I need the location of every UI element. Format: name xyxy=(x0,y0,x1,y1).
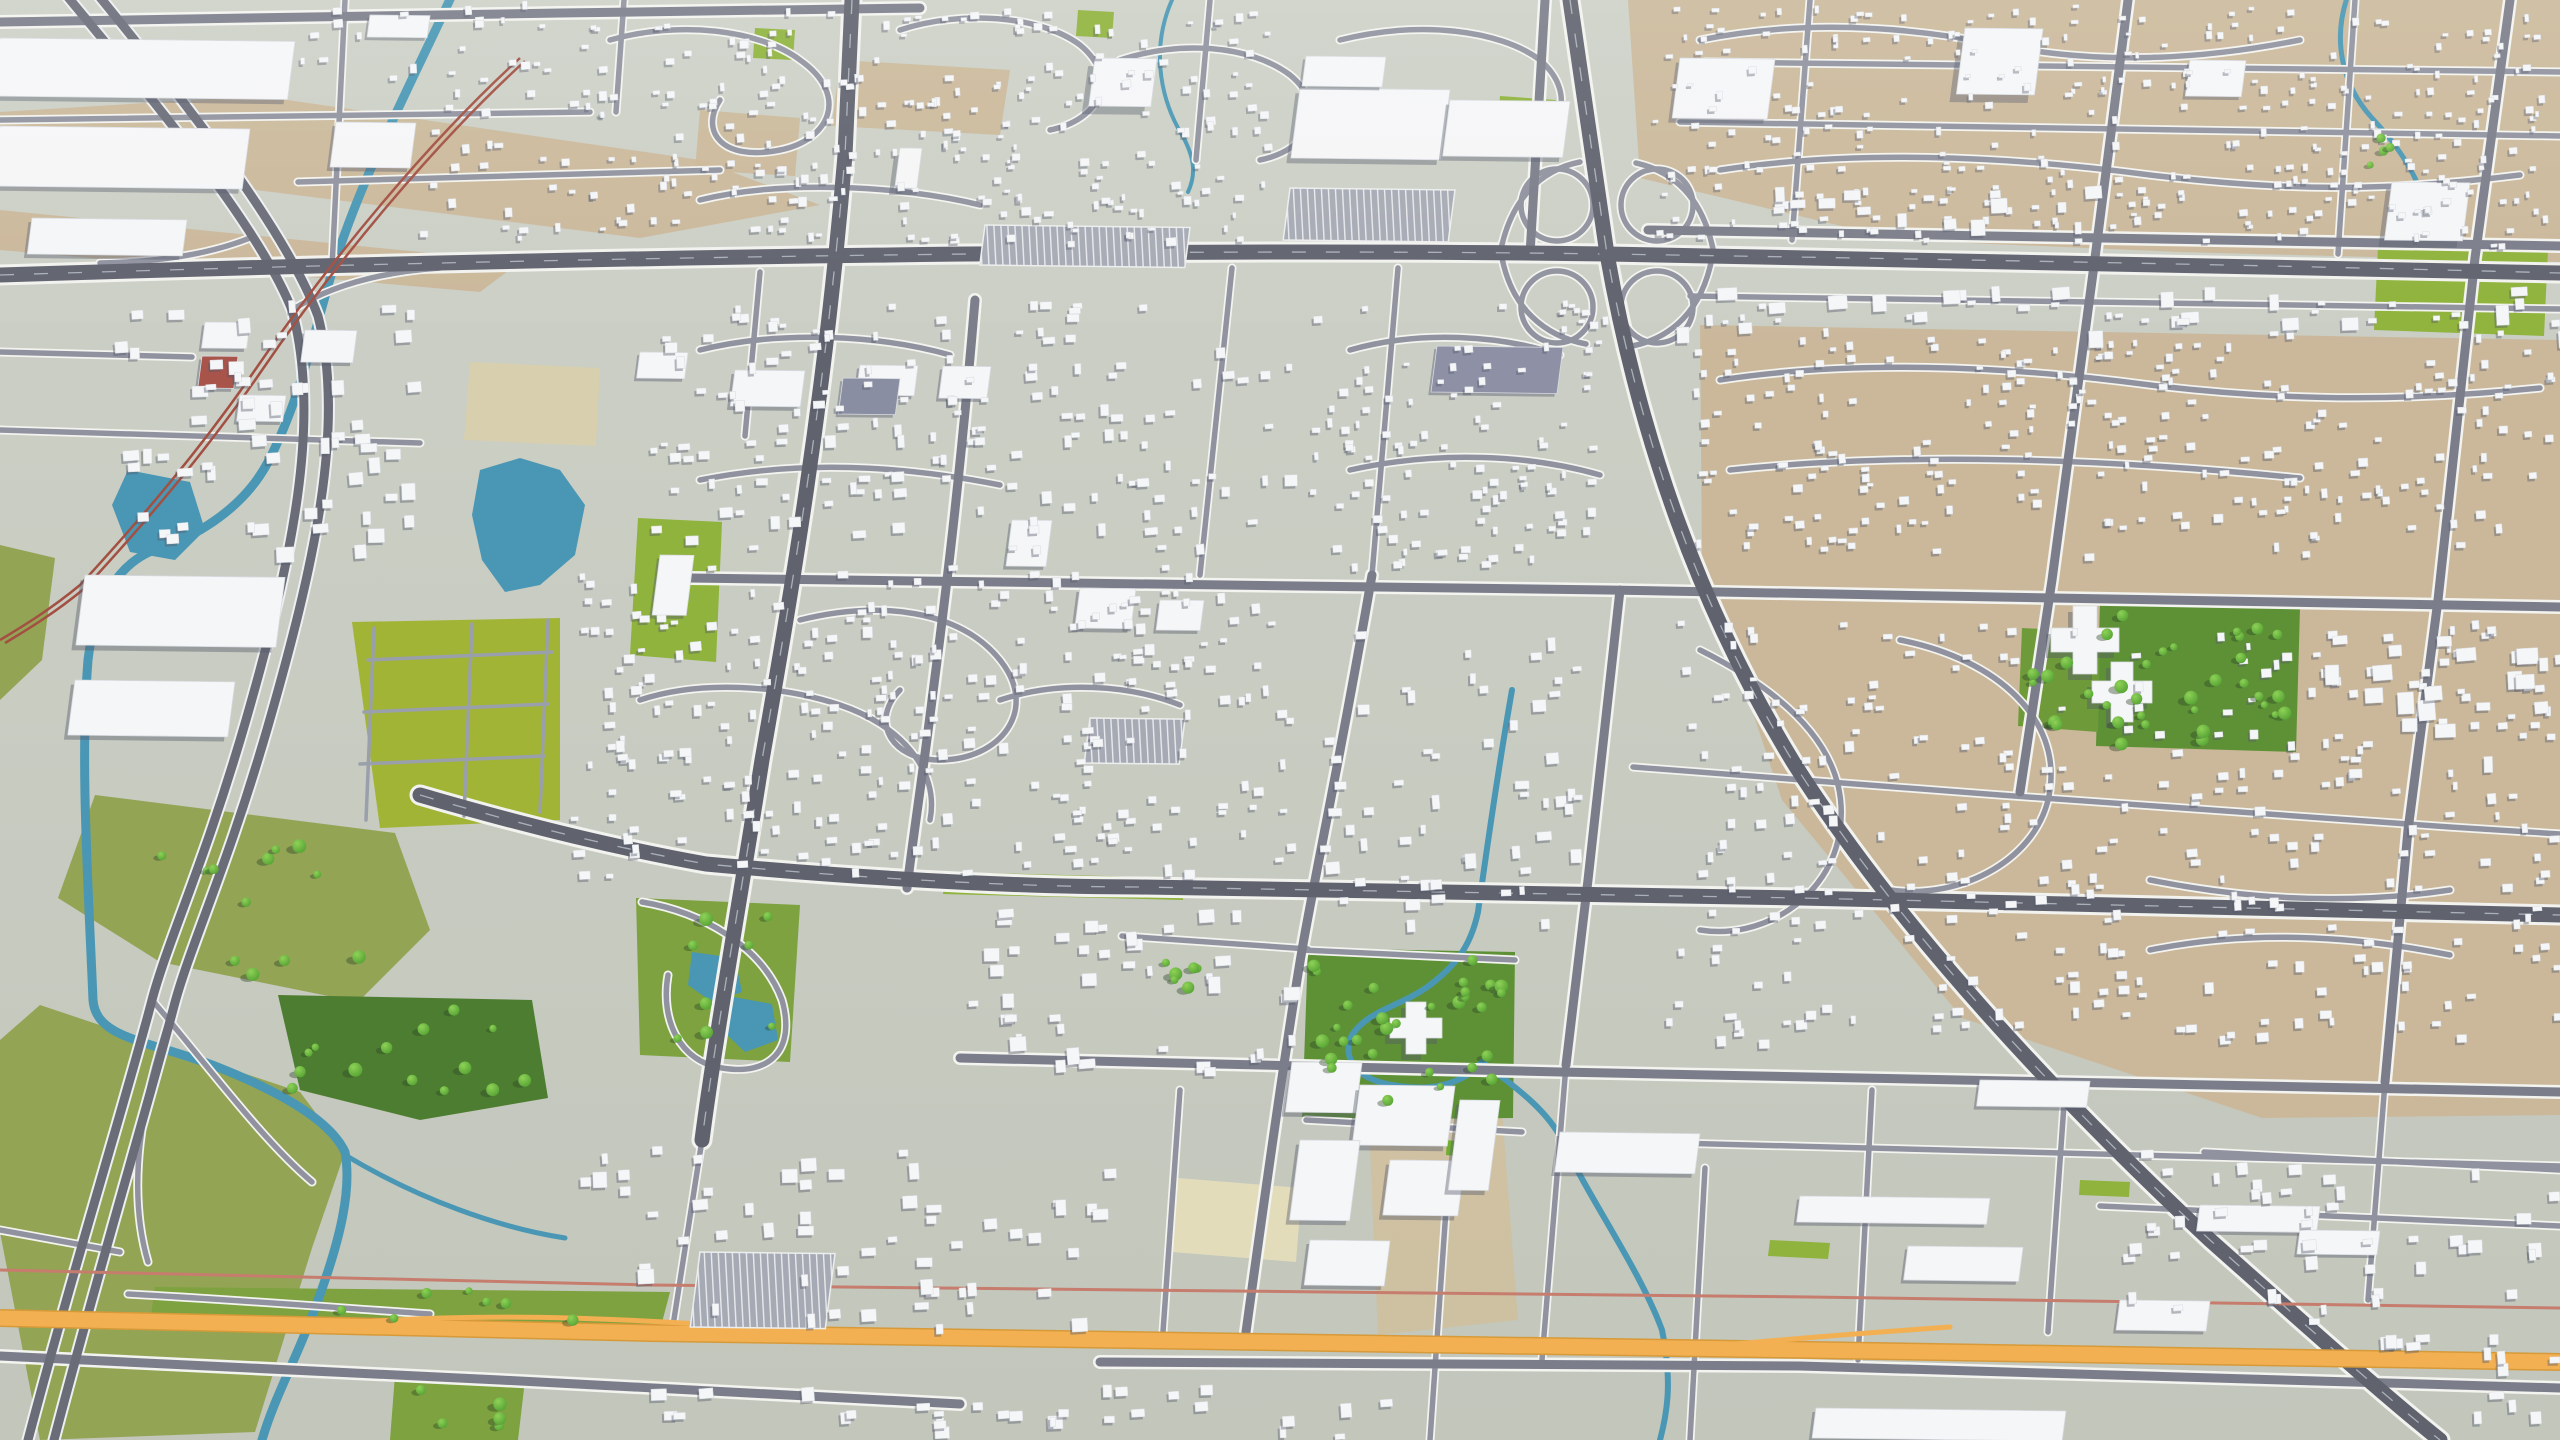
house-roof xyxy=(1073,810,1082,815)
house-roof xyxy=(769,196,777,202)
house-roof xyxy=(2483,37,2490,42)
house-roof xyxy=(2531,126,2535,132)
house-roof xyxy=(768,49,772,57)
house-roof xyxy=(2303,551,2311,558)
house-roof xyxy=(2489,97,2495,102)
house-roof xyxy=(900,397,908,402)
house-roof xyxy=(1675,1001,1683,1007)
house-roof xyxy=(2113,910,2121,920)
house-roof xyxy=(2120,526,2127,530)
house-roof xyxy=(891,472,904,482)
house-roof xyxy=(2323,739,2329,748)
house-roof xyxy=(737,133,745,142)
house-roof xyxy=(1955,32,1960,36)
house-roof xyxy=(2383,634,2393,642)
house-roof xyxy=(2452,312,2461,317)
house-roof xyxy=(1718,28,1725,33)
house-roof xyxy=(897,182,904,191)
house-roof xyxy=(2214,514,2224,523)
house-roof xyxy=(749,545,759,550)
house-roof xyxy=(849,152,857,159)
house-roof xyxy=(1560,309,1567,314)
house-roof xyxy=(2483,406,2489,414)
house-roof xyxy=(2186,442,2195,450)
house-roof xyxy=(931,691,936,699)
house-roof xyxy=(2366,95,2372,99)
house-roof xyxy=(2496,524,2503,534)
house-roof xyxy=(2162,374,2170,381)
house-roof xyxy=(2115,313,2123,317)
house-roof xyxy=(2286,164,2294,169)
house-roof xyxy=(696,388,706,394)
house-roof xyxy=(1823,328,1828,337)
house-roof xyxy=(1793,484,1803,492)
house-roof xyxy=(1518,368,1526,372)
house-roof xyxy=(2251,829,2259,835)
house-roof xyxy=(1899,496,1909,504)
house-roof xyxy=(883,21,889,30)
house-shadow xyxy=(2124,35,2129,38)
house-roof xyxy=(1060,122,1066,131)
house-roof xyxy=(2287,842,2298,850)
house-roof xyxy=(1115,206,1124,211)
house-roof xyxy=(586,581,595,588)
house-roof xyxy=(755,164,760,167)
house-roof xyxy=(1096,53,1104,59)
house-roof xyxy=(709,479,715,489)
house-roof xyxy=(1688,166,1696,172)
house-roof xyxy=(1277,710,1287,718)
house-roof xyxy=(788,770,799,778)
house-roof xyxy=(1044,211,1054,217)
house-roof xyxy=(750,710,756,720)
house-roof xyxy=(801,702,809,713)
house-roof xyxy=(816,817,822,826)
house-roof xyxy=(1237,236,1244,242)
house-roof xyxy=(1574,308,1580,313)
house-roof xyxy=(2454,938,2462,945)
house-roof xyxy=(1589,445,1597,450)
house-roof xyxy=(813,774,822,781)
house-roof xyxy=(1839,454,1846,464)
house-roof xyxy=(1064,503,1076,511)
house-roof xyxy=(2105,774,2112,779)
house-roof xyxy=(828,11,835,16)
house-roof xyxy=(1709,142,1717,147)
house-roof xyxy=(2226,343,2231,351)
house-roof xyxy=(708,702,716,706)
house-roof xyxy=(806,131,815,139)
house-roof xyxy=(766,357,778,364)
building xyxy=(0,126,250,189)
house-roof xyxy=(1265,424,1274,429)
house-roof xyxy=(891,640,897,647)
house-roof xyxy=(816,233,822,236)
building xyxy=(1291,88,1450,160)
house-roof xyxy=(1482,561,1492,568)
house-roof xyxy=(573,850,585,858)
house-roof xyxy=(1185,659,1192,667)
house-roof xyxy=(1755,423,1762,429)
house-roof xyxy=(1756,819,1767,828)
house-roof xyxy=(1689,723,1697,729)
house-roof xyxy=(2103,76,2106,82)
house-roof xyxy=(756,170,765,176)
house-roof xyxy=(2351,470,2361,476)
house-roof xyxy=(2000,653,2008,660)
house-roof xyxy=(2480,858,2491,866)
house-roof xyxy=(1956,50,1960,56)
house-roof xyxy=(1975,737,1984,744)
house-roof xyxy=(2351,757,2361,763)
house-roof xyxy=(2525,14,2529,22)
house-roof xyxy=(1018,194,1023,201)
house-roof xyxy=(2507,228,2514,233)
house-roof xyxy=(970,12,979,19)
house-roof xyxy=(2006,763,2014,770)
house-roof xyxy=(2135,52,2139,58)
house-roof xyxy=(2073,628,2078,636)
house-roof xyxy=(1897,525,1902,533)
house-roof xyxy=(2341,86,2347,91)
house-roof xyxy=(1772,700,1780,706)
city-3d-map-render xyxy=(0,0,2560,1440)
house-roof xyxy=(1042,491,1053,504)
house-roof xyxy=(2073,1008,2079,1019)
house-roof xyxy=(2274,770,2283,777)
house-roof xyxy=(2241,457,2250,462)
house-roof xyxy=(609,157,615,161)
house-roof xyxy=(1695,349,1702,356)
house-roof xyxy=(1093,739,1103,747)
house-roof xyxy=(794,801,801,812)
house-roof xyxy=(868,709,872,717)
house-roof xyxy=(2427,87,2434,95)
house-roof xyxy=(2498,330,2504,335)
house-roof xyxy=(672,220,680,224)
house-roof xyxy=(1943,166,1950,170)
house-roof xyxy=(921,237,929,242)
house-roof xyxy=(1092,183,1099,189)
house-roof xyxy=(1853,729,1860,734)
house-roof xyxy=(2495,393,2503,399)
house-roof xyxy=(942,329,951,339)
house-roof xyxy=(2017,932,2027,938)
house-roof xyxy=(2454,139,2461,146)
house-roof xyxy=(1702,751,1708,759)
house-roof xyxy=(1149,227,1155,230)
house-roof xyxy=(852,868,859,877)
house-roof xyxy=(2155,212,2162,218)
house-roof xyxy=(1815,514,1822,520)
house-roof xyxy=(1193,379,1202,388)
house-roof xyxy=(1144,510,1150,520)
house-roof xyxy=(1483,487,1488,494)
house-roof xyxy=(1493,527,1498,535)
house-roof xyxy=(998,135,1004,138)
house-roof xyxy=(944,694,952,699)
house-roof xyxy=(751,226,761,232)
house-roof xyxy=(2194,343,2201,348)
house-roof xyxy=(2015,66,2021,71)
house-roof xyxy=(2291,478,2297,486)
house-roof xyxy=(780,323,787,327)
house-roof xyxy=(846,616,854,622)
house xyxy=(683,536,698,548)
house-roof xyxy=(1066,101,1072,106)
house-roof xyxy=(1125,847,1133,851)
house-roof xyxy=(1796,709,1805,714)
house-roof xyxy=(1192,479,1200,484)
house-roof xyxy=(2003,803,2010,809)
house-roof xyxy=(1032,117,1041,123)
house-roof xyxy=(2220,875,2224,883)
house-roof xyxy=(1188,21,1193,24)
house-roof xyxy=(2416,89,2420,95)
house-roof xyxy=(978,506,985,515)
house-roof xyxy=(1709,167,1717,173)
house-roof xyxy=(1062,703,1073,710)
house-roof xyxy=(787,30,792,36)
house-roof xyxy=(2440,659,2450,666)
house-roof xyxy=(1949,479,1956,484)
house-roof xyxy=(1698,235,1705,240)
house-roof xyxy=(1064,435,1072,447)
house-roof xyxy=(864,382,872,388)
house-roof xyxy=(1124,619,1133,629)
house-roof xyxy=(1398,446,1404,455)
house-roof xyxy=(2259,510,2267,515)
house-roof xyxy=(609,789,617,795)
house-roof xyxy=(2433,316,2440,321)
house-roof xyxy=(2181,104,2188,110)
house-roof xyxy=(2112,116,2117,124)
house-roof xyxy=(2097,846,2107,852)
house-roof xyxy=(2036,895,2047,904)
house-roof xyxy=(2541,870,2550,877)
house-roof xyxy=(1765,135,1771,140)
house-roof xyxy=(2249,35,2253,42)
house-roof xyxy=(955,155,960,161)
house-roof xyxy=(2467,994,2476,999)
house-roof xyxy=(1999,74,2005,78)
house-roof xyxy=(1709,910,1717,917)
house-roof xyxy=(2223,709,2233,715)
house-roof xyxy=(901,33,907,36)
house-roof xyxy=(1254,662,1261,669)
house-roof xyxy=(999,743,1009,754)
house-roof xyxy=(893,149,897,156)
house-roof xyxy=(750,589,755,597)
house-roof xyxy=(2300,72,2305,78)
house-roof xyxy=(1894,35,1900,42)
house-roof xyxy=(2375,437,2382,441)
house-roof xyxy=(822,478,831,483)
house-roof xyxy=(1985,421,1992,427)
house-roof xyxy=(2257,1032,2269,1042)
house-roof xyxy=(2438,388,2446,393)
house-roof xyxy=(1691,123,1699,129)
house-roof xyxy=(1450,363,1457,371)
house-roof xyxy=(1040,302,1052,310)
house-roof xyxy=(1957,803,1967,810)
house-roof xyxy=(2415,886,2422,892)
house-roof xyxy=(2421,669,2430,677)
house-roof xyxy=(1744,691,1753,699)
house-roof xyxy=(1717,1036,1726,1047)
house-roof xyxy=(869,791,877,798)
house-roof xyxy=(2027,409,2034,417)
house-roof xyxy=(2309,99,2315,104)
house-roof xyxy=(2403,961,2412,969)
house-roof xyxy=(1919,856,1928,863)
house-roof xyxy=(2394,112,2402,116)
house-roof xyxy=(1933,1025,1942,1032)
house-roof xyxy=(1764,753,1774,759)
map-viewport xyxy=(0,0,2560,1440)
house-roof xyxy=(2445,1001,2452,1010)
house-roof xyxy=(2122,803,2129,811)
house-roof xyxy=(2450,182,2457,188)
house-roof xyxy=(900,202,910,210)
house-roof xyxy=(768,41,776,47)
house-roof xyxy=(1020,663,1027,674)
house-roof xyxy=(1709,107,1717,112)
house-roof xyxy=(1007,235,1016,242)
house-roof xyxy=(591,627,600,635)
house-roof xyxy=(2202,414,2208,419)
house-roof xyxy=(822,858,831,866)
house-roof xyxy=(2069,403,2077,409)
house-roof xyxy=(1216,348,1225,359)
house-roof xyxy=(604,687,613,698)
house-roof xyxy=(1287,718,1295,724)
house-roof xyxy=(694,705,702,716)
house-roof xyxy=(2119,78,2125,83)
house-roof xyxy=(2007,370,2016,377)
house-roof xyxy=(866,365,871,374)
house-roof xyxy=(2137,977,2143,985)
house-roof xyxy=(2421,489,2428,495)
house-roof xyxy=(606,629,614,636)
house-roof xyxy=(1947,915,1958,923)
house-roof xyxy=(2526,106,2534,113)
house-roof xyxy=(1864,113,1870,117)
house-roof xyxy=(1251,603,1260,614)
house-roof xyxy=(1314,316,1323,323)
house-roof xyxy=(1021,207,1031,216)
house-roof xyxy=(1065,652,1072,660)
house-roof xyxy=(915,15,921,18)
house-roof xyxy=(2369,196,2375,199)
building xyxy=(330,122,416,168)
house-roof xyxy=(2415,210,2421,213)
house-roof xyxy=(1127,738,1135,743)
house-roof xyxy=(2210,369,2217,377)
house-roof xyxy=(1815,6,1819,14)
house-roof xyxy=(2013,9,2019,16)
house-roof xyxy=(2226,141,2230,148)
house-roof xyxy=(1969,94,1973,101)
house-roof xyxy=(1806,164,1814,170)
house-roof xyxy=(1809,799,1820,805)
house-roof xyxy=(742,791,750,802)
house-roof xyxy=(2069,421,2075,426)
house-roof xyxy=(2508,714,2515,719)
house-roof xyxy=(2186,81,2190,87)
house-roof xyxy=(1727,877,1736,884)
house-roof xyxy=(1055,70,1063,76)
house-roof xyxy=(1515,544,1523,551)
house-roof xyxy=(763,66,768,74)
house-roof xyxy=(1928,337,1935,343)
house-roof xyxy=(1230,91,1238,97)
house-roof xyxy=(1248,104,1258,111)
house-roof xyxy=(1011,451,1022,459)
house-roof xyxy=(2498,722,2508,729)
house-roof xyxy=(680,748,692,757)
house-roof xyxy=(1173,590,1178,597)
house-roof xyxy=(1847,355,1856,363)
house-roof xyxy=(2523,65,2531,71)
house-roof xyxy=(1795,885,1805,893)
house-roof xyxy=(2328,168,2334,175)
house-roof xyxy=(718,392,728,398)
house-roof xyxy=(2087,400,2096,405)
house-roof xyxy=(1149,161,1156,166)
house-roof xyxy=(2132,653,2141,658)
house-roof xyxy=(1362,407,1370,413)
house-roof xyxy=(1118,809,1129,818)
house-roof xyxy=(2445,112,2452,117)
house-roof xyxy=(2115,177,2123,183)
house-roof xyxy=(1748,66,1756,73)
house-roof xyxy=(1968,20,1974,23)
house-roof xyxy=(1219,810,1227,815)
house-roof xyxy=(2436,504,2444,509)
house-roof xyxy=(1081,169,1088,175)
house-roof xyxy=(600,112,604,118)
house-roof xyxy=(913,846,923,855)
house-roof xyxy=(1732,928,1739,934)
house-roof xyxy=(803,112,808,119)
house-roof xyxy=(1883,634,1892,639)
house-roof xyxy=(2338,496,2342,502)
house-roof xyxy=(2435,71,2439,78)
house-roof xyxy=(936,316,947,324)
house-roof xyxy=(1130,596,1141,603)
house-roof xyxy=(2453,782,2458,790)
house-roof xyxy=(1549,526,1556,531)
house-roof xyxy=(1026,87,1031,91)
house-roof xyxy=(2238,786,2248,792)
house-roof xyxy=(581,627,589,633)
house-roof xyxy=(2278,26,2285,32)
house-roof xyxy=(830,704,839,711)
house-roof xyxy=(1825,889,1833,895)
house-roof xyxy=(2240,768,2245,778)
house-roof xyxy=(858,609,867,615)
house-roof xyxy=(1544,343,1549,352)
house-roof xyxy=(2530,166,2536,171)
house-roof xyxy=(721,723,730,730)
house-roof xyxy=(1092,493,1099,502)
house-roof xyxy=(2042,37,2049,45)
house-roof xyxy=(2295,1018,2304,1028)
house-roof xyxy=(1770,912,1780,920)
building xyxy=(76,575,285,647)
house-roof xyxy=(1822,1005,1832,1013)
